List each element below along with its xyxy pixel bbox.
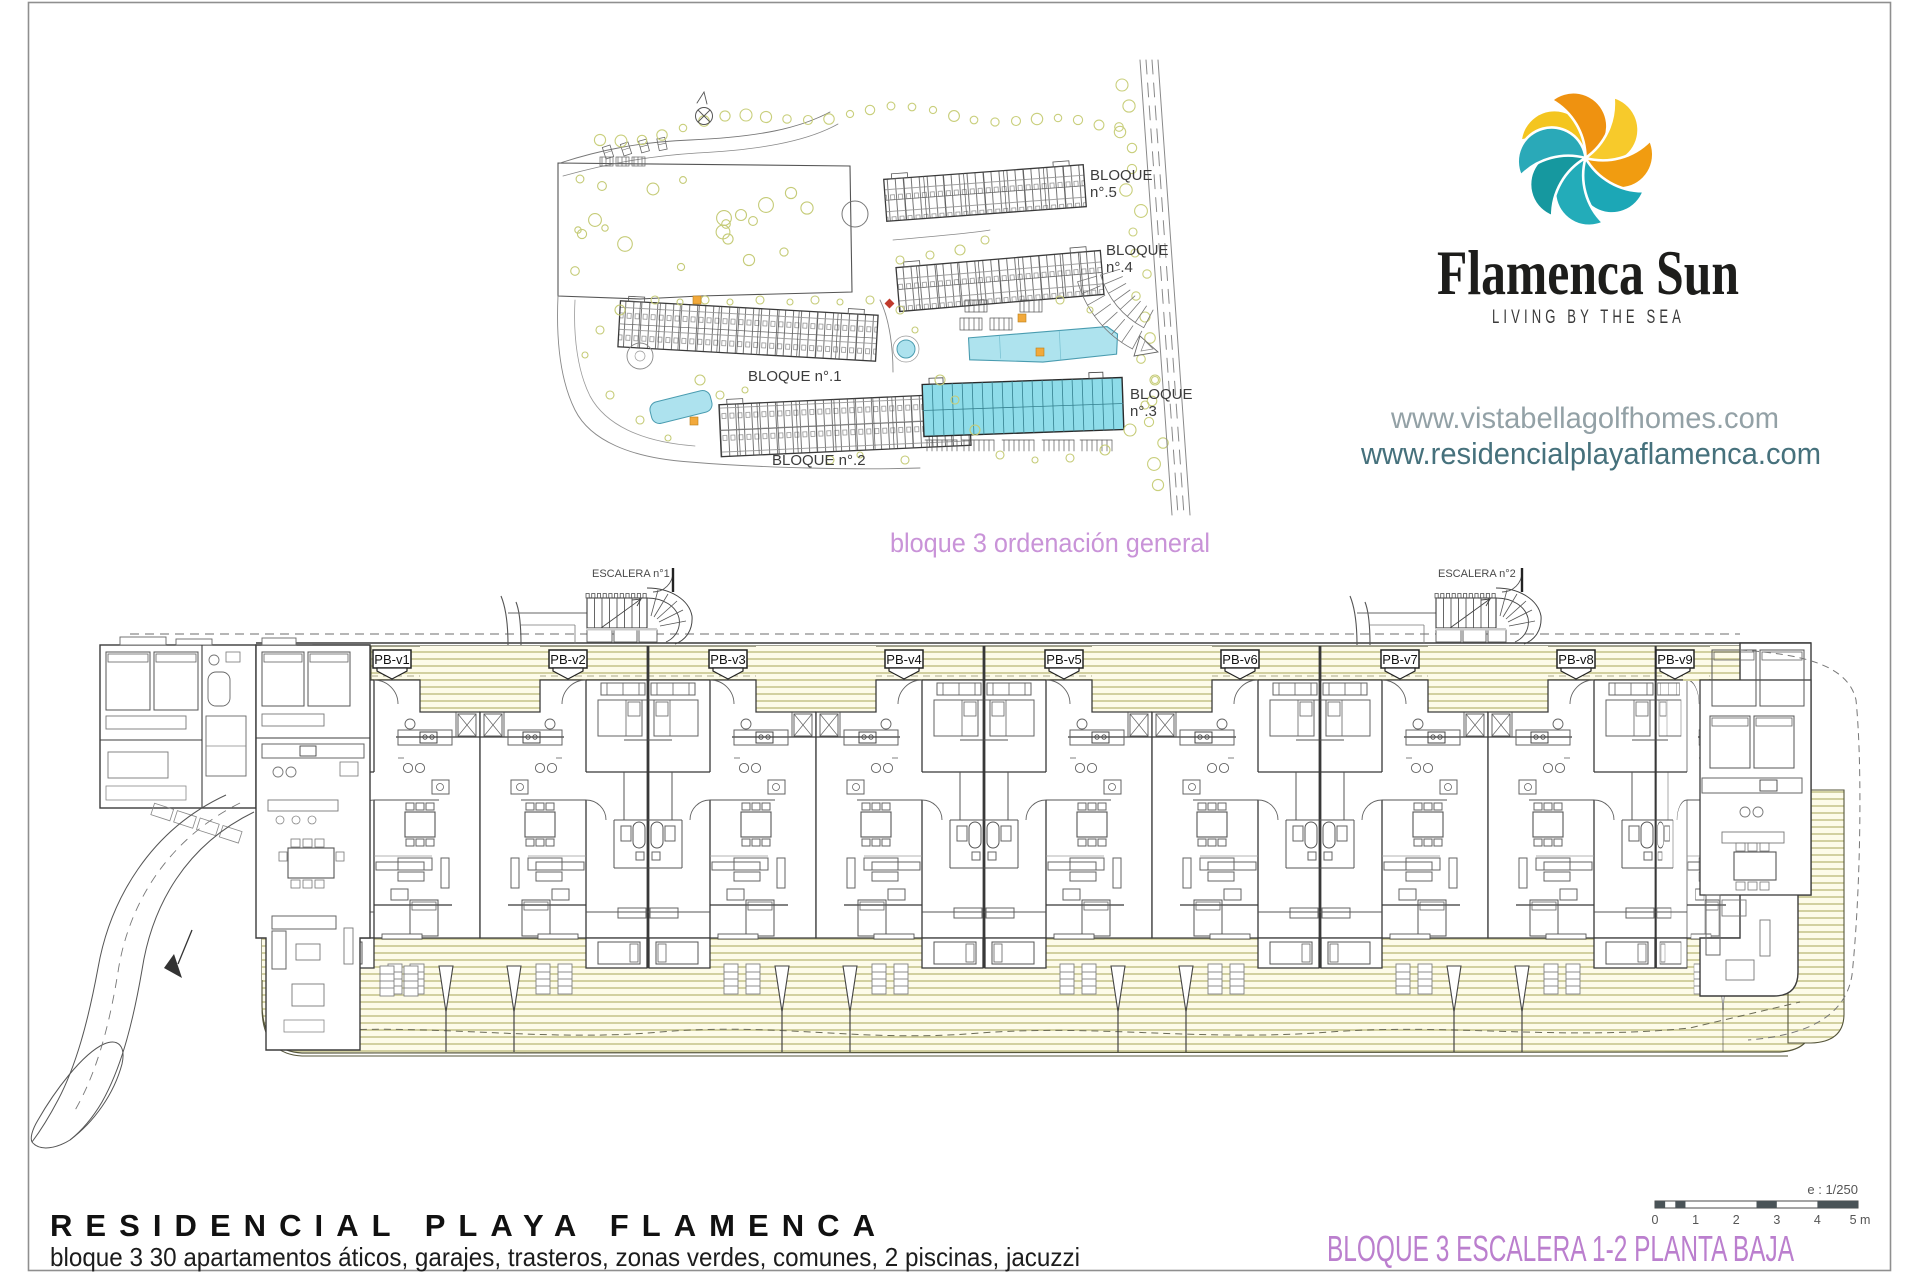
svg-text:PB-v2: PB-v2 [550, 652, 585, 667]
svg-text:PB-v8: PB-v8 [1558, 652, 1593, 667]
svg-text:0: 0 [1652, 1213, 1659, 1227]
svg-text:bloque 3 ordenación general: bloque 3 ordenación general [890, 528, 1210, 558]
svg-text:PB-v5: PB-v5 [1046, 652, 1081, 667]
svg-text:PB-v7: PB-v7 [1382, 652, 1417, 667]
svg-text:n°.5: n°.5 [1090, 184, 1117, 201]
svg-text:Flamenca Sun: Flamenca Sun [1437, 237, 1739, 308]
svg-text:BLOQUE: BLOQUE [1090, 167, 1153, 184]
svg-text:3: 3 [1773, 1213, 1780, 1227]
svg-text:n°.3: n°.3 [1130, 403, 1157, 420]
svg-text:www.vistabellagolfhomes.com: www.vistabellagolfhomes.com [1390, 402, 1779, 435]
svg-text:n°.4: n°.4 [1106, 259, 1133, 276]
svg-text:LIVING BY THE SEA: LIVING BY THE SEA [1492, 307, 1685, 328]
svg-text:www.residencialplayaflamenca.c: www.residencialplayaflamenca.com [1360, 436, 1821, 471]
svg-text:BLOQUE 3 ESCALERA 1-2 PLANTA: BLOQUE 3 ESCALERA 1-2 PLANTA BAJA [1327, 1228, 1794, 1269]
svg-text:ESCALERA n°1: ESCALERA n°1 [592, 568, 670, 580]
svg-text:e : 1/250: e : 1/250 [1807, 1182, 1858, 1197]
svg-text:bloque 3 30 apartamentos átic: bloque 3 30 apartamentos áticos, garajes… [50, 1242, 1080, 1272]
svg-text:BLOQUE n°.1: BLOQUE n°.1 [748, 368, 842, 385]
svg-text:4: 4 [1814, 1213, 1821, 1227]
svg-text:1: 1 [1692, 1213, 1699, 1227]
svg-text:BLOQUE: BLOQUE [1106, 242, 1169, 259]
svg-text:PB-v4: PB-v4 [886, 652, 921, 667]
svg-text:ESCALERA n°2: ESCALERA n°2 [1438, 568, 1516, 580]
svg-text:2: 2 [1733, 1213, 1740, 1227]
svg-text:PB-v1: PB-v1 [374, 652, 409, 667]
svg-text:BLOQUE n°.2: BLOQUE n°.2 [772, 452, 866, 469]
svg-text:PB-v9: PB-v9 [1657, 652, 1692, 667]
svg-text:PB-v3: PB-v3 [710, 652, 745, 667]
svg-text:5 m: 5 m [1850, 1213, 1871, 1227]
svg-text:RESIDENCIAL PLAYA FLAMENCA: RESIDENCIAL PLAYA FLAMENCA [50, 1208, 888, 1243]
svg-text:BLOQUE: BLOQUE [1130, 386, 1193, 403]
svg-text:PB-v6: PB-v6 [1222, 652, 1257, 667]
